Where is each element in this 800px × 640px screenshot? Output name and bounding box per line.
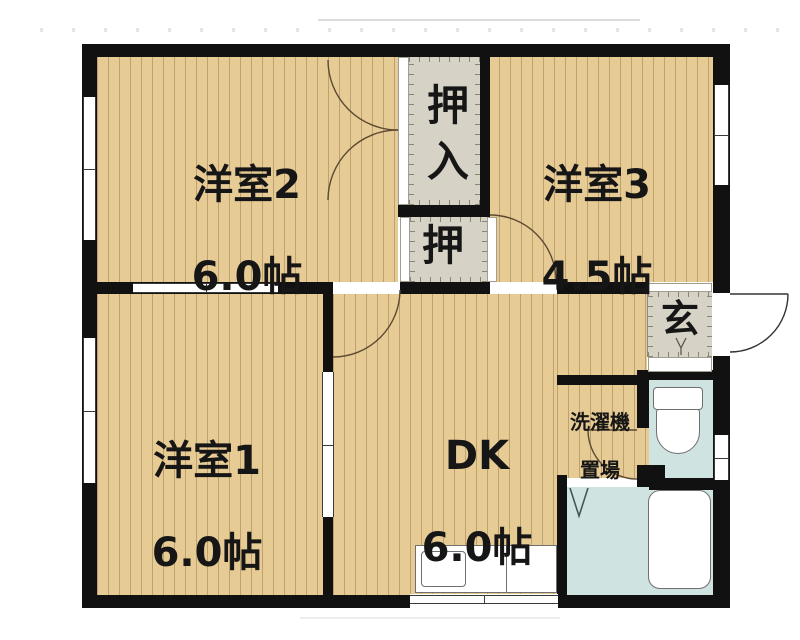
room2-size: 6.0帖: [147, 254, 347, 300]
room1-size: 6.0帖: [107, 530, 307, 576]
eave-line: [318, 19, 640, 21]
wall-closet-bottom: [398, 205, 490, 217]
entrance-step: [648, 357, 712, 372]
closet-small-door-right: [487, 217, 497, 282]
laundry-label-line1: 洗濯機: [557, 410, 643, 434]
toilet-icon: [651, 385, 707, 455]
room3-size: 4.5帖: [497, 254, 697, 300]
room1-left-window: [83, 338, 96, 483]
dk-name: DK: [377, 433, 577, 479]
dk-label: DK 6.0帖: [377, 387, 577, 617]
floor-plan: 洋室2 6.0帖 洋室3 4.5帖 洋室1 6.0帖 DK 6.0帖 押入 押 …: [0, 0, 800, 640]
room1-label: 洋室1 6.0帖: [107, 392, 307, 622]
laundry-label-line2: 置場: [557, 458, 643, 482]
room2-label: 洋室2 6.0帖: [147, 116, 347, 346]
wall-closet-right: [480, 44, 490, 217]
closet-small-door-left: [400, 217, 410, 282]
closet-small-label: 押: [421, 222, 465, 270]
dk-size: 6.0帖: [377, 525, 577, 571]
toilet-bowl: [656, 409, 700, 454]
room1-name: 洋室1: [107, 438, 307, 484]
entrance-door-arc: [730, 294, 788, 352]
room1-dk-sliding-door: [322, 372, 334, 517]
eave-tick-row: [40, 28, 790, 32]
wall-toilet-bath: [649, 478, 713, 490]
toilet-tank: [653, 387, 703, 410]
room2-name: 洋室2: [147, 162, 347, 208]
toilet-window: [714, 435, 729, 480]
room3-right-window: [714, 85, 729, 185]
bathtub-icon: [648, 490, 711, 589]
closet-large-label: 押入: [426, 78, 470, 190]
room2-left-window: [83, 97, 96, 240]
laundry-label: 洗濯機 置場: [557, 386, 643, 506]
bottom-faint-line: [300, 617, 560, 619]
room3-name: 洋室3: [497, 162, 697, 208]
entrance-door-opening: [713, 293, 730, 356]
closet-large-doors: [398, 57, 409, 205]
entrance-label: 玄: [660, 298, 700, 342]
wall-top: [82, 44, 727, 57]
wall-laundry-top: [557, 375, 648, 385]
